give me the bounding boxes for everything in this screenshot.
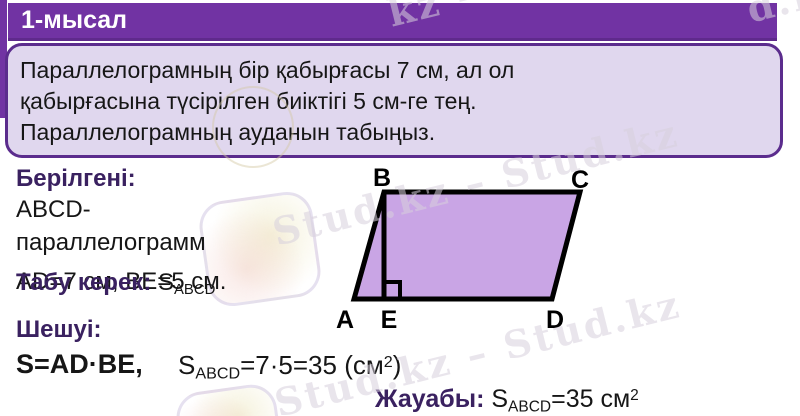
- find-line: Табу керек: SABCD: [16, 269, 215, 298]
- calc-close: ): [393, 350, 402, 380]
- given-label: Берілгені:: [16, 165, 136, 193]
- vertex-label-b: B: [373, 164, 391, 192]
- vertex-label-c: C: [571, 166, 589, 194]
- problem-line-1: Параллелограмның бір қабырғасы 7 см, ал …: [20, 55, 780, 86]
- page-title: 1-мысал: [8, 6, 127, 35]
- solution-calculation: SABCD=7·5=35 (см2): [178, 350, 401, 384]
- answer-label: Жауабы:: [375, 385, 484, 413]
- answer-symbol: S: [491, 385, 508, 413]
- parallelogram-figure: B C A E D: [333, 160, 603, 333]
- slide-header: 1-мысал: [8, 3, 777, 41]
- answer-subscript: ABCD: [508, 398, 551, 415]
- foot-label-e: E: [381, 306, 398, 333]
- solution-label: Шешуі:: [16, 316, 101, 344]
- watermark-logo: [173, 381, 284, 416]
- find-label: Табу керек:: [16, 269, 151, 296]
- given-shape-name: ABCD-: [16, 196, 91, 224]
- answer-line: Жауабы: SABCD=35 см2: [375, 385, 639, 416]
- solution-formula: S=AD·BE,: [16, 349, 143, 380]
- problem-line-3: Параллелограмның ауданын табыңыз.: [20, 117, 780, 148]
- slide: 1-мысал Параллелограмның бір қабырғасы 7…: [0, 0, 800, 416]
- find-symbol-subscript: ABCD: [174, 282, 215, 298]
- find-symbol: S: [158, 269, 174, 296]
- calc-superscript: 2: [384, 353, 393, 371]
- answer-superscript: 2: [630, 387, 639, 404]
- vertex-label-a: A: [336, 306, 354, 333]
- vertex-label-d: D: [546, 306, 564, 333]
- answer-value: =35 см: [551, 385, 630, 413]
- problem-box: Параллелограмның бір қабырғасы 7 см, ал …: [5, 43, 783, 158]
- problem-line-2: қабырғасына түсірілген биіктігі 5 см-ге …: [20, 86, 780, 117]
- given-shape-type: параллелограмм: [16, 229, 206, 257]
- calc-subscript: ABCD: [195, 365, 240, 383]
- calc-body: =7·5=35 (см: [240, 350, 384, 380]
- calc-symbol: S: [178, 350, 195, 380]
